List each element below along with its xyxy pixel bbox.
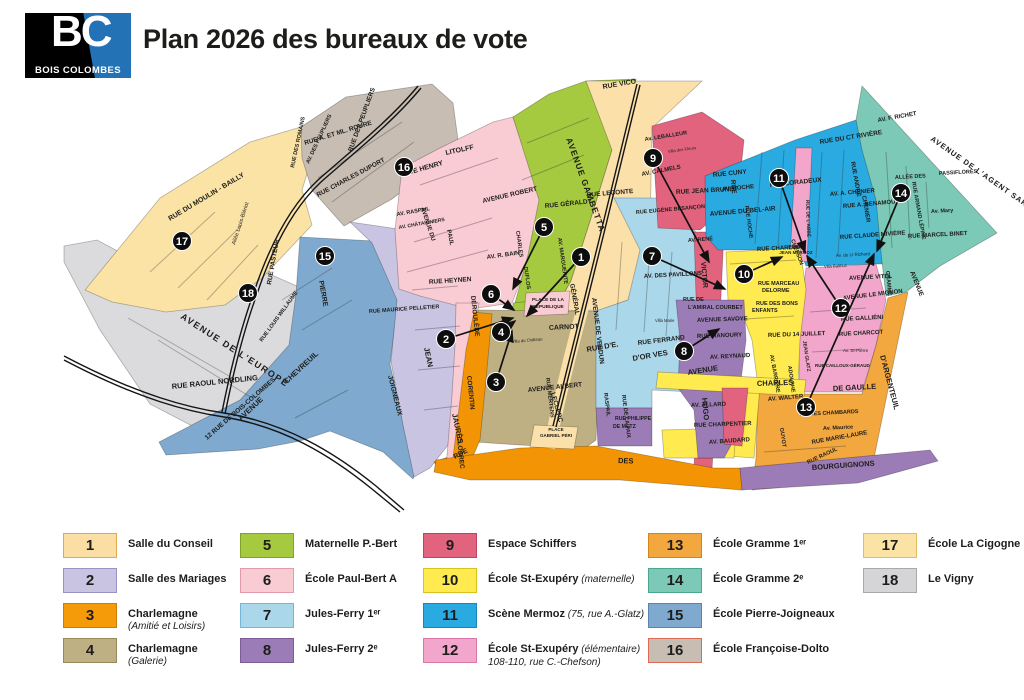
street-label: PLACE [548, 427, 563, 432]
district-marker-number: 11 [773, 173, 785, 185]
district-marker-number: 13 [800, 402, 812, 414]
street-label: RUE DES BONS [756, 301, 798, 307]
district-marker-number: 8 [681, 346, 687, 358]
header: BC BOIS COLOMBES Plan 2026 des bureaux d… [0, 0, 1024, 80]
district-marker-number: 4 [498, 327, 505, 339]
street-label: L'AMIRAL COURBET [688, 305, 743, 311]
street-label: DE METZ [613, 424, 637, 430]
district-marker-number: 16 [398, 162, 410, 174]
poster-page: RUE A. ET ML. ROURERUE DES PEUPLIERSAV. … [0, 0, 1024, 700]
district-marker-number: 15 [319, 251, 331, 263]
street-label: RUE DE [683, 297, 704, 303]
district-marker-number: 2 [443, 334, 449, 346]
voting-districts-map: RUE A. ET ML. ROURERUE DES PEUPLIERSAV. … [0, 0, 1024, 700]
street-label: PLACE [788, 244, 803, 249]
district-marker-number: 17 [176, 236, 188, 248]
district-marker-number: 14 [895, 188, 908, 200]
street-label: RUE MARCEAU [758, 281, 799, 287]
bois-colombes-logo: BC BOIS COLOMBES [25, 13, 131, 78]
street-label: CHARLES [757, 378, 794, 388]
street-label: AV. REYNAUD [710, 353, 751, 361]
street-label: DES [618, 456, 634, 466]
street-label: JEAN MERMOZ [779, 250, 813, 255]
street-label: Av. St-Pierre [843, 348, 869, 353]
district-marker-number: 1 [578, 252, 584, 264]
logo-city-name: BOIS COLOMBES [25, 65, 131, 76]
district-marker-number: 12 [835, 303, 847, 315]
district-marker-number: 7 [649, 251, 655, 263]
district-marker-number: 10 [738, 269, 750, 281]
street-label: PASSIFLORES [939, 169, 978, 177]
district-marker-number: 18 [242, 288, 254, 300]
street-label: Av. Mary [931, 208, 955, 215]
district-marker-number: 3 [493, 377, 499, 389]
logo-monogram: BC [51, 13, 111, 57]
district-marker-number: 5 [541, 222, 547, 234]
street-label: AV. ALLARD [691, 402, 727, 409]
district-marker-number: 9 [650, 153, 656, 165]
street-label: GABRIEL PÉRI [540, 431, 572, 438]
street-label: ENFANTS [752, 308, 778, 314]
street-label: RUE PHILIPPE [615, 416, 652, 422]
street-label: Villa Marie [655, 318, 675, 323]
street-label: PLACE DE LA [532, 297, 565, 303]
page-title: Plan 2026 des bureaux de vote [143, 24, 527, 55]
street-label: DELORME [762, 288, 790, 294]
district-marker-number: 6 [488, 289, 494, 301]
